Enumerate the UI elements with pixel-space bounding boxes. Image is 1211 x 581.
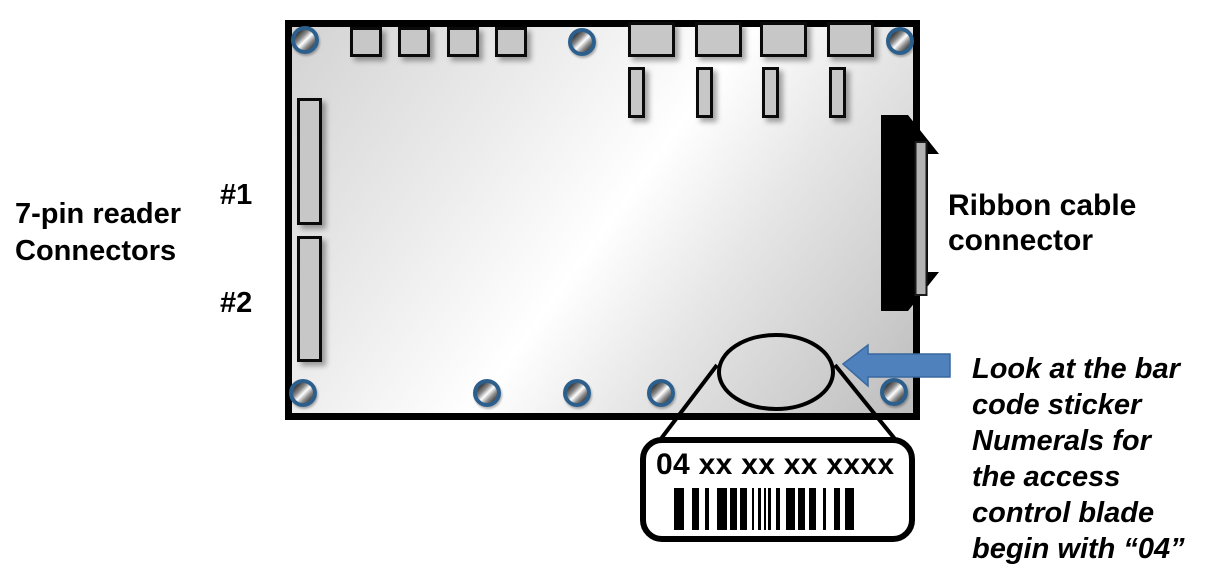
screw-icon [886, 27, 914, 55]
connector-1-label: #1 [220, 179, 252, 212]
screw-icon [568, 28, 596, 56]
barcode-bar [705, 488, 709, 530]
top-edge-connector-small [350, 27, 382, 57]
barcode-bar [758, 488, 761, 530]
barcode-bar [768, 488, 771, 530]
screw-icon [880, 378, 908, 406]
screw-icon [289, 379, 317, 407]
circuit-board [285, 20, 920, 420]
barcode-note: Look at the bar code sticker Numerals fo… [972, 351, 1204, 567]
barcode-bar [798, 488, 805, 530]
barcode-bar [730, 488, 737, 530]
barcode-bar [717, 488, 727, 530]
barcode-bar [809, 488, 816, 530]
barcode-callout: 04 xx xx xx xxxx [640, 437, 915, 542]
screw-icon [647, 379, 675, 407]
top-edge-connector-small [447, 27, 479, 57]
barcode-bar [764, 488, 766, 530]
top-edge-connector-large [695, 22, 742, 57]
top-edge-connector-large [760, 22, 807, 57]
screw-icon [563, 379, 591, 407]
component-pad [628, 67, 645, 118]
barcode-bar [752, 488, 754, 530]
ribbon-connector-label: Ribbon cable connector [948, 188, 1136, 258]
component-pad [829, 67, 846, 118]
barcode-bar [823, 488, 826, 530]
reader-connector-1 [297, 98, 322, 225]
component-pad [762, 67, 779, 118]
diagram-canvas: 04 xx xx xx xxxx 7-pin reader Connectors… [0, 0, 1211, 581]
barcode-bar [674, 488, 684, 530]
barcode-bar [776, 488, 780, 530]
top-edge-connector-large [628, 22, 675, 57]
barcode-bar [692, 488, 699, 530]
barcode-bar [740, 488, 747, 530]
connector-2-label: #2 [220, 287, 252, 320]
screw-icon [291, 26, 319, 54]
barcode-number: 04 xx xx xx xxxx [656, 448, 894, 482]
barcode [674, 488, 854, 530]
top-edge-connector-large [827, 22, 874, 57]
screw-icon [473, 379, 501, 407]
component-pad [696, 67, 713, 118]
reader-connectors-label: 7-pin reader Connectors [15, 196, 181, 270]
top-edge-connector-small [398, 27, 430, 57]
top-edge-connector-small [495, 27, 527, 57]
barcode-bar [786, 488, 795, 530]
barcode-bar [845, 488, 854, 530]
reader-connector-2 [297, 236, 322, 362]
barcode-bar [834, 488, 840, 530]
